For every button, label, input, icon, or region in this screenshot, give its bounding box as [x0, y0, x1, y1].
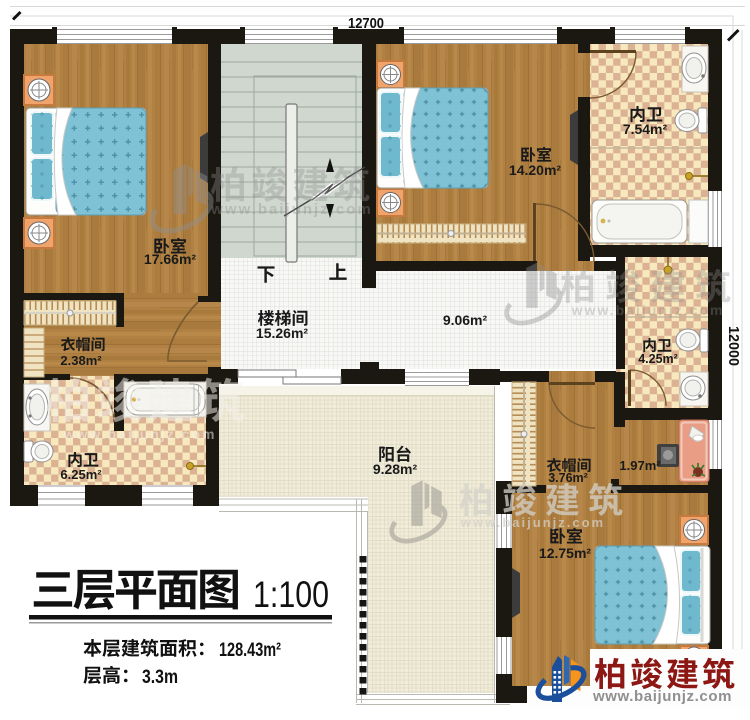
svg-text:9.28m²: 9.28m² [373, 461, 418, 477]
svg-text:www.baijunjz.com: www.baijunjz.com [571, 302, 725, 318]
svg-text:9.06m²: 9.06m² [443, 312, 488, 328]
svg-text:www.baijunjz.com: www.baijunjz.com [460, 515, 605, 530]
svg-text:3.76m²: 3.76m² [548, 471, 588, 485]
svg-text:www.baijunjz.com: www.baijunjz.com [592, 688, 732, 705]
svg-text:1:100: 1:100 [253, 574, 329, 615]
svg-text:15.26m²: 15.26m² [256, 325, 308, 341]
svg-text:12.75m²: 12.75m² [539, 545, 591, 561]
svg-text:6.25m²: 6.25m² [60, 467, 102, 482]
svg-text:4.25m²: 4.25m² [638, 352, 678, 366]
svg-text:128.43m²: 128.43m² [219, 640, 281, 661]
svg-text:3.3m: 3.3m [142, 667, 178, 688]
svg-text:7.54m²: 7.54m² [623, 121, 668, 137]
svg-text:1.97m²: 1.97m² [619, 458, 661, 473]
svg-text:www.baijunjz.com: www.baijunjz.com [210, 201, 372, 218]
svg-text:14.20m²: 14.20m² [509, 162, 561, 178]
svg-text:17.66m²: 17.66m² [144, 251, 196, 267]
svg-text:2.38m²: 2.38m² [60, 353, 102, 368]
svg-text:12000: 12000 [725, 326, 742, 366]
svg-text:www.baijunjz.com: www.baijunjz.com [63, 426, 217, 442]
